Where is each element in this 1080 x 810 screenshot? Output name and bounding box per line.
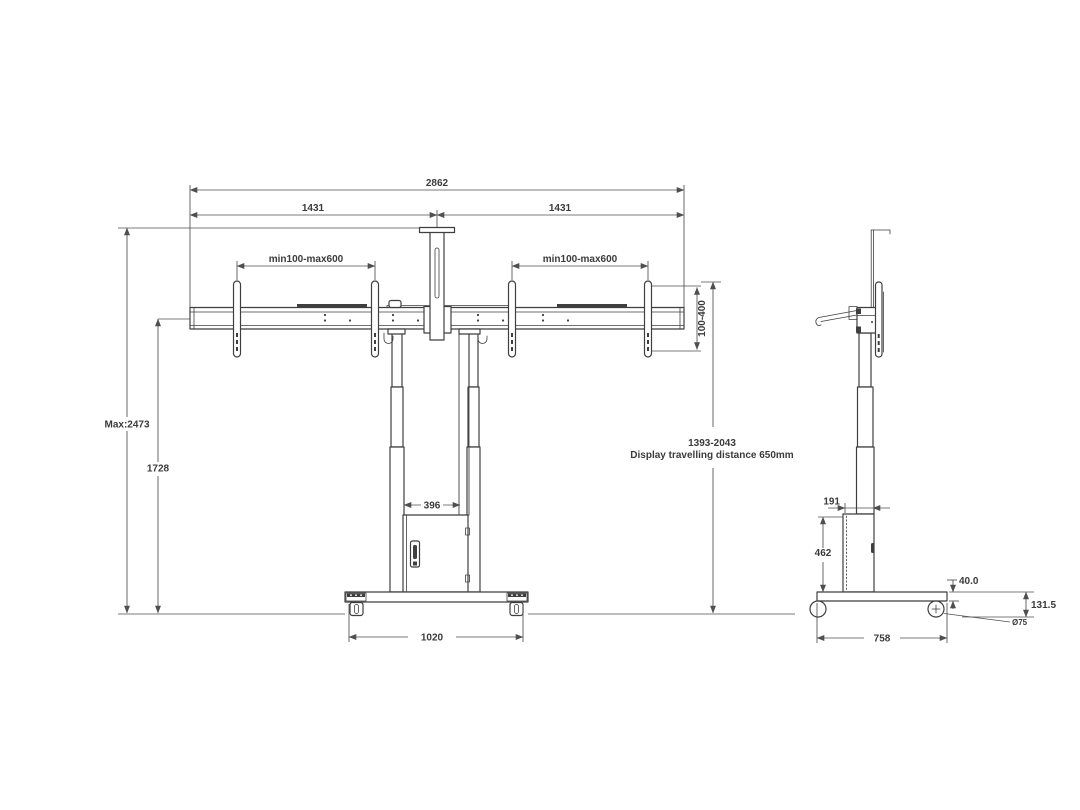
bracket-slot bbox=[374, 340, 376, 344]
hole bbox=[392, 319, 394, 321]
base-bar bbox=[817, 592, 947, 601]
bracket-slot bbox=[511, 347, 513, 351]
dim-label-base-height: 131.5 bbox=[1031, 600, 1056, 611]
bracket-slot bbox=[236, 340, 238, 344]
bracket-slot bbox=[236, 347, 238, 351]
bolt bbox=[360, 594, 362, 596]
bracket-slot bbox=[878, 334, 880, 338]
drawing-svg: 2862 1431 1431 min100-max600 min100-max6… bbox=[0, 0, 1080, 810]
column-lower-tube bbox=[857, 447, 875, 514]
dim-label-plate-thickness: 40.0 bbox=[959, 576, 979, 587]
dim-label-total-width: 2862 bbox=[426, 178, 449, 189]
beam-mount-left bbox=[388, 329, 405, 334]
dim-label-base-depth: 758 bbox=[874, 634, 891, 645]
front-caster-left bbox=[350, 603, 363, 616]
bolt bbox=[511, 594, 513, 596]
column-lower-tube bbox=[390, 447, 404, 592]
hole bbox=[477, 319, 479, 321]
bolt bbox=[521, 594, 523, 596]
hole bbox=[542, 319, 544, 321]
bracket-slot bbox=[647, 340, 649, 344]
column-mid-tube bbox=[858, 387, 874, 447]
vesa-bracket-1 bbox=[234, 281, 241, 357]
hole bbox=[392, 314, 394, 316]
front-left-column bbox=[390, 330, 404, 592]
bolt bbox=[516, 594, 518, 596]
bracket-slot bbox=[878, 341, 880, 345]
dim-label-enclosure-depth: 191 bbox=[823, 497, 840, 508]
support-arm-hook bbox=[816, 318, 821, 326]
side-column bbox=[857, 333, 875, 514]
dim-caster-leader bbox=[944, 614, 1010, 623]
dim-label-right-half: 1431 bbox=[549, 203, 572, 214]
bracket-slot bbox=[374, 333, 376, 337]
vesa-bracket-4 bbox=[645, 281, 652, 357]
side-cabinet bbox=[843, 514, 875, 592]
technical-drawing-canvas: 2862 1431 1431 min100-max600 min100-max6… bbox=[0, 0, 1080, 810]
cabinet-handle bbox=[871, 543, 875, 553]
arm-mount bbox=[849, 307, 857, 320]
column-mid-tube bbox=[468, 387, 479, 447]
camera-plate bbox=[420, 228, 455, 233]
lock-knob bbox=[389, 301, 401, 308]
column-upper-tube bbox=[469, 330, 478, 387]
front-view bbox=[190, 228, 684, 616]
beam-top-rail-right bbox=[557, 304, 627, 308]
dim-label-vesa-height: 100-400 bbox=[697, 300, 708, 337]
bracket-bar bbox=[645, 281, 652, 357]
control-slot bbox=[413, 545, 417, 559]
camera-mount bbox=[420, 228, 455, 341]
bracket-slot bbox=[374, 347, 376, 351]
bracket-slot bbox=[236, 333, 238, 337]
cabinet-body bbox=[843, 514, 874, 592]
beam-tab-bottom bbox=[856, 327, 861, 333]
vesa-bracket-2 bbox=[372, 281, 379, 357]
hole bbox=[349, 319, 351, 321]
column-upper-tube bbox=[859, 333, 871, 387]
hole bbox=[324, 319, 326, 321]
bracket-bar bbox=[876, 282, 883, 357]
vesa-bracket-3 bbox=[509, 281, 516, 357]
dim-label-vesa-left: min100-max600 bbox=[269, 254, 344, 265]
beam-bolt bbox=[871, 321, 873, 323]
bracket-bar bbox=[234, 281, 241, 357]
bracket-bar bbox=[372, 281, 379, 357]
column-mid-tube bbox=[391, 387, 403, 447]
bracket-bar bbox=[509, 281, 516, 357]
caster-wheel-left bbox=[810, 601, 826, 617]
bracket-slot bbox=[647, 347, 649, 351]
bracket-slot bbox=[647, 333, 649, 337]
dim-label-left-half: 1431 bbox=[302, 203, 325, 214]
side-beam-block bbox=[816, 307, 877, 334]
control-led bbox=[413, 562, 417, 566]
base-bar bbox=[345, 592, 528, 602]
dim-label-travel-range: 1393-2043 bbox=[688, 438, 736, 449]
dim-label-travel-note: Display travelling distance 650mm bbox=[630, 450, 794, 461]
bolt bbox=[355, 594, 357, 596]
hole bbox=[324, 314, 326, 316]
bracket-slot bbox=[511, 340, 513, 344]
beam-mount-right bbox=[459, 329, 480, 334]
dim-label-caster-diameter: Ø75 bbox=[1012, 618, 1028, 627]
front-caster-right bbox=[510, 603, 523, 616]
beam-top-rail-left bbox=[297, 304, 367, 308]
side-base bbox=[810, 592, 947, 617]
side-vesa-bracket bbox=[876, 282, 884, 357]
front-cabinet bbox=[403, 515, 470, 592]
dim-label-beam-height: 1728 bbox=[147, 464, 170, 475]
dim-label-enclosure-width: 396 bbox=[424, 501, 441, 512]
dim-label-vesa-right: min100-max600 bbox=[543, 254, 618, 265]
dim-label-max-height: Max:2473 bbox=[104, 420, 149, 431]
dim-label-enclosure-height: 462 bbox=[815, 548, 832, 559]
bolt bbox=[350, 594, 352, 596]
dim-label-base-width: 1020 bbox=[421, 633, 444, 644]
hole bbox=[567, 319, 569, 321]
hole bbox=[417, 319, 419, 321]
support-arm-top bbox=[819, 311, 857, 318]
column-upper-tube bbox=[392, 330, 402, 387]
hole bbox=[477, 314, 479, 316]
bracket-slot bbox=[511, 333, 513, 337]
hole bbox=[502, 319, 504, 321]
bracket-slot bbox=[878, 348, 880, 352]
front-base bbox=[345, 592, 528, 616]
hole bbox=[542, 314, 544, 316]
